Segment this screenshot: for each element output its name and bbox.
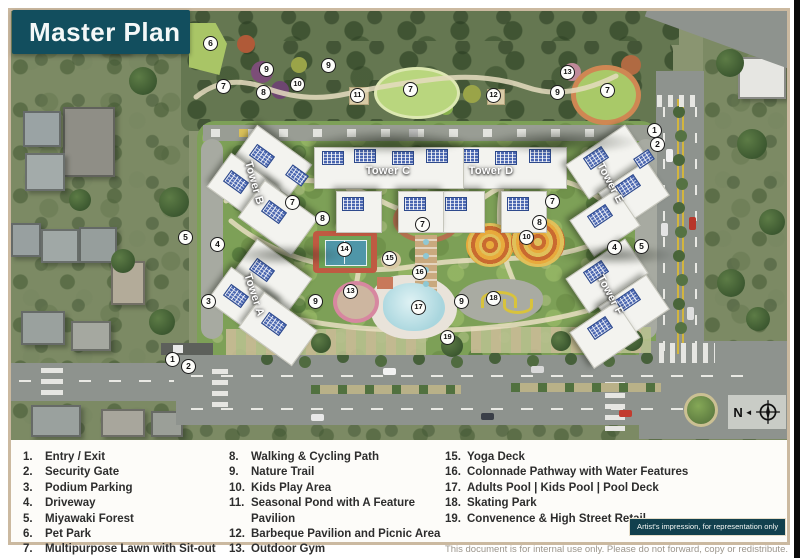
legend-item-number: 11. [229, 496, 251, 527]
legend-item-label: Colonnade Pathway with Water Features [467, 465, 688, 480]
map-marker-8: 8 [532, 215, 547, 230]
master-plan-page: N ◄ [0, 0, 800, 558]
legend-column-2: 8.Walking & Cycling Path9.Nature Trail10… [229, 450, 444, 558]
legend-item-label: Driveway [45, 496, 96, 511]
map-marker-8: 8 [315, 211, 330, 226]
legend-item-number: 15. [445, 450, 467, 465]
legend-item-number: 18. [445, 496, 467, 511]
legend-item: 12.Barbeque Pavilion and Picnic Area [229, 527, 444, 542]
legend-item: 4.Driveway [23, 496, 223, 511]
legend-item-label: Barbeque Pavilion and Picnic Area [251, 527, 440, 542]
map-marker-5: 5 [634, 239, 649, 254]
legend-item-number: 19. [445, 512, 467, 527]
legend-item-label: Podium Parking [45, 481, 133, 496]
legend-item-number: 6. [23, 527, 45, 542]
legend-item-number: 16. [445, 465, 467, 480]
legend-column-3: 15.Yoga Deck16.Colonnade Pathway with Wa… [445, 450, 775, 527]
legend-item-label: Seasonal Pond with A Feature Pavilion [251, 496, 444, 527]
legend-item-number: 3. [23, 481, 45, 496]
map-marker-7: 7 [415, 217, 430, 232]
map-marker-9: 9 [454, 294, 469, 309]
map-marker-8: 8 [256, 85, 271, 100]
map-marker-10: 10 [290, 77, 305, 92]
legend-item-number: 17. [445, 481, 467, 496]
map-marker-9: 9 [259, 62, 274, 77]
legend-item-number: 12. [229, 527, 251, 542]
legend-item-label: Adults Pool | Kids Pool | Pool Deck [467, 481, 659, 496]
map-marker-4: 4 [210, 237, 225, 252]
legend-item-label: Kids Play Area [251, 481, 331, 496]
legend-item: 2.Security Gate [23, 465, 223, 480]
legend-item-label: Walking & Cycling Path [251, 450, 379, 465]
map-marker-10: 10 [519, 230, 534, 245]
map-marker-4: 4 [607, 240, 622, 255]
map-marker-2: 2 [181, 359, 196, 374]
legend-item-number: 4. [23, 496, 45, 511]
legend-item-number: 1. [23, 450, 45, 465]
legend-item-number: 2. [23, 465, 45, 480]
map-marker-14: 14 [337, 242, 352, 257]
legend-item-label: Pet Park [45, 527, 91, 542]
plan-frame: N ◄ [8, 8, 790, 545]
map-marker-5: 5 [178, 230, 193, 245]
legend-item-number: 10. [229, 481, 251, 496]
legend-item-label: Yoga Deck [467, 450, 525, 465]
legend-item-label: Security Gate [45, 465, 119, 480]
masterplan-aerial-map: N ◄ [11, 11, 787, 440]
legend-item: 6.Pet Park [23, 527, 223, 542]
map-marker-7: 7 [216, 79, 231, 94]
map-marker-13: 13 [343, 284, 358, 299]
title-box: Master Plan [12, 10, 190, 54]
artist-impression-badge: Artist's impression, for representation … [629, 518, 786, 536]
map-marker-6: 6 [203, 36, 218, 51]
footer-disclaimer: This document is for internal use only. … [0, 544, 788, 555]
legend-item-number: 8. [229, 450, 251, 465]
legend-item: 1.Entry / Exit [23, 450, 223, 465]
legend-item: 18.Skating Park [445, 496, 775, 511]
map-marker-2: 2 [650, 137, 665, 152]
map-marker-7: 7 [600, 83, 615, 98]
map-marker-11: 11 [350, 88, 365, 103]
map-marker-13: 13 [560, 65, 575, 80]
map-marker-1: 1 [647, 123, 662, 138]
map-marker-16: 16 [412, 265, 427, 280]
legend-column-1: 1.Entry / Exit2.Security Gate3.Podium Pa… [23, 450, 223, 558]
legend-item: 8.Walking & Cycling Path [229, 450, 444, 465]
legend-item-number: 9. [229, 465, 251, 480]
legend-item: 15.Yoga Deck [445, 450, 775, 465]
page-title: Master Plan [12, 10, 190, 54]
legend-item: 3.Podium Parking [23, 481, 223, 496]
map-marker-12: 12 [486, 88, 501, 103]
map-marker-15: 15 [382, 251, 397, 266]
map-marker-18: 18 [486, 291, 501, 306]
map-marker-7: 7 [403, 82, 418, 97]
legend-item-label: Nature Trail [251, 465, 314, 480]
legend-item-label: Entry / Exit [45, 450, 105, 465]
legend-item: 5.Miyawaki Forest [23, 512, 223, 527]
right-edge-strip [794, 0, 800, 558]
legend-item: 16.Colonnade Pathway with Water Features [445, 465, 775, 480]
map-marker-3: 3 [201, 294, 216, 309]
legend-item-label: Miyawaki Forest [45, 512, 134, 527]
legend-item: 9.Nature Trail [229, 465, 444, 480]
legend-item: 17.Adults Pool | Kids Pool | Pool Deck [445, 481, 775, 496]
legend-item-label: Convenence & High Street Retail [467, 512, 646, 527]
legend-item-number: 5. [23, 512, 45, 527]
legend-item: 10.Kids Play Area [229, 481, 444, 496]
legend-item-label: Skating Park [467, 496, 537, 511]
map-marker-17: 17 [411, 300, 426, 315]
map-marker-7: 7 [545, 194, 560, 209]
map-marker-9: 9 [550, 85, 565, 100]
map-markers-layer: 6978109117129137125478147151678104531391… [11, 11, 787, 440]
map-marker-19: 19 [440, 330, 455, 345]
map-marker-7: 7 [285, 195, 300, 210]
map-marker-9: 9 [321, 58, 336, 73]
legend-item: 11.Seasonal Pond with A Feature Pavilion [229, 496, 444, 527]
map-marker-9: 9 [308, 294, 323, 309]
map-marker-1: 1 [165, 352, 180, 367]
